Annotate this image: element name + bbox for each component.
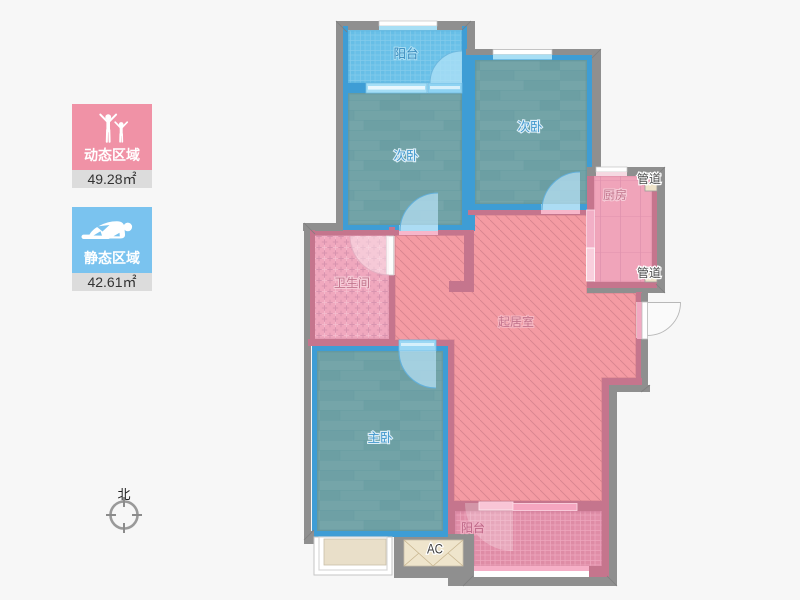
- svg-text:管道: 管道: [637, 265, 661, 280]
- svg-text:次卧: 次卧: [517, 120, 542, 134]
- svg-text:次卧: 次卧: [393, 149, 418, 163]
- svg-text:阳台: 阳台: [461, 520, 485, 535]
- svg-text:主卧: 主卧: [367, 431, 392, 445]
- svg-text:AC: AC: [427, 542, 443, 557]
- svg-text:阳台: 阳台: [393, 46, 418, 61]
- svg-text:厨房: 厨房: [603, 187, 627, 202]
- svg-text:起居室: 起居室: [498, 314, 534, 329]
- svg-text:管道: 管道: [637, 171, 661, 186]
- svg-text:卫生间: 卫生间: [334, 276, 370, 290]
